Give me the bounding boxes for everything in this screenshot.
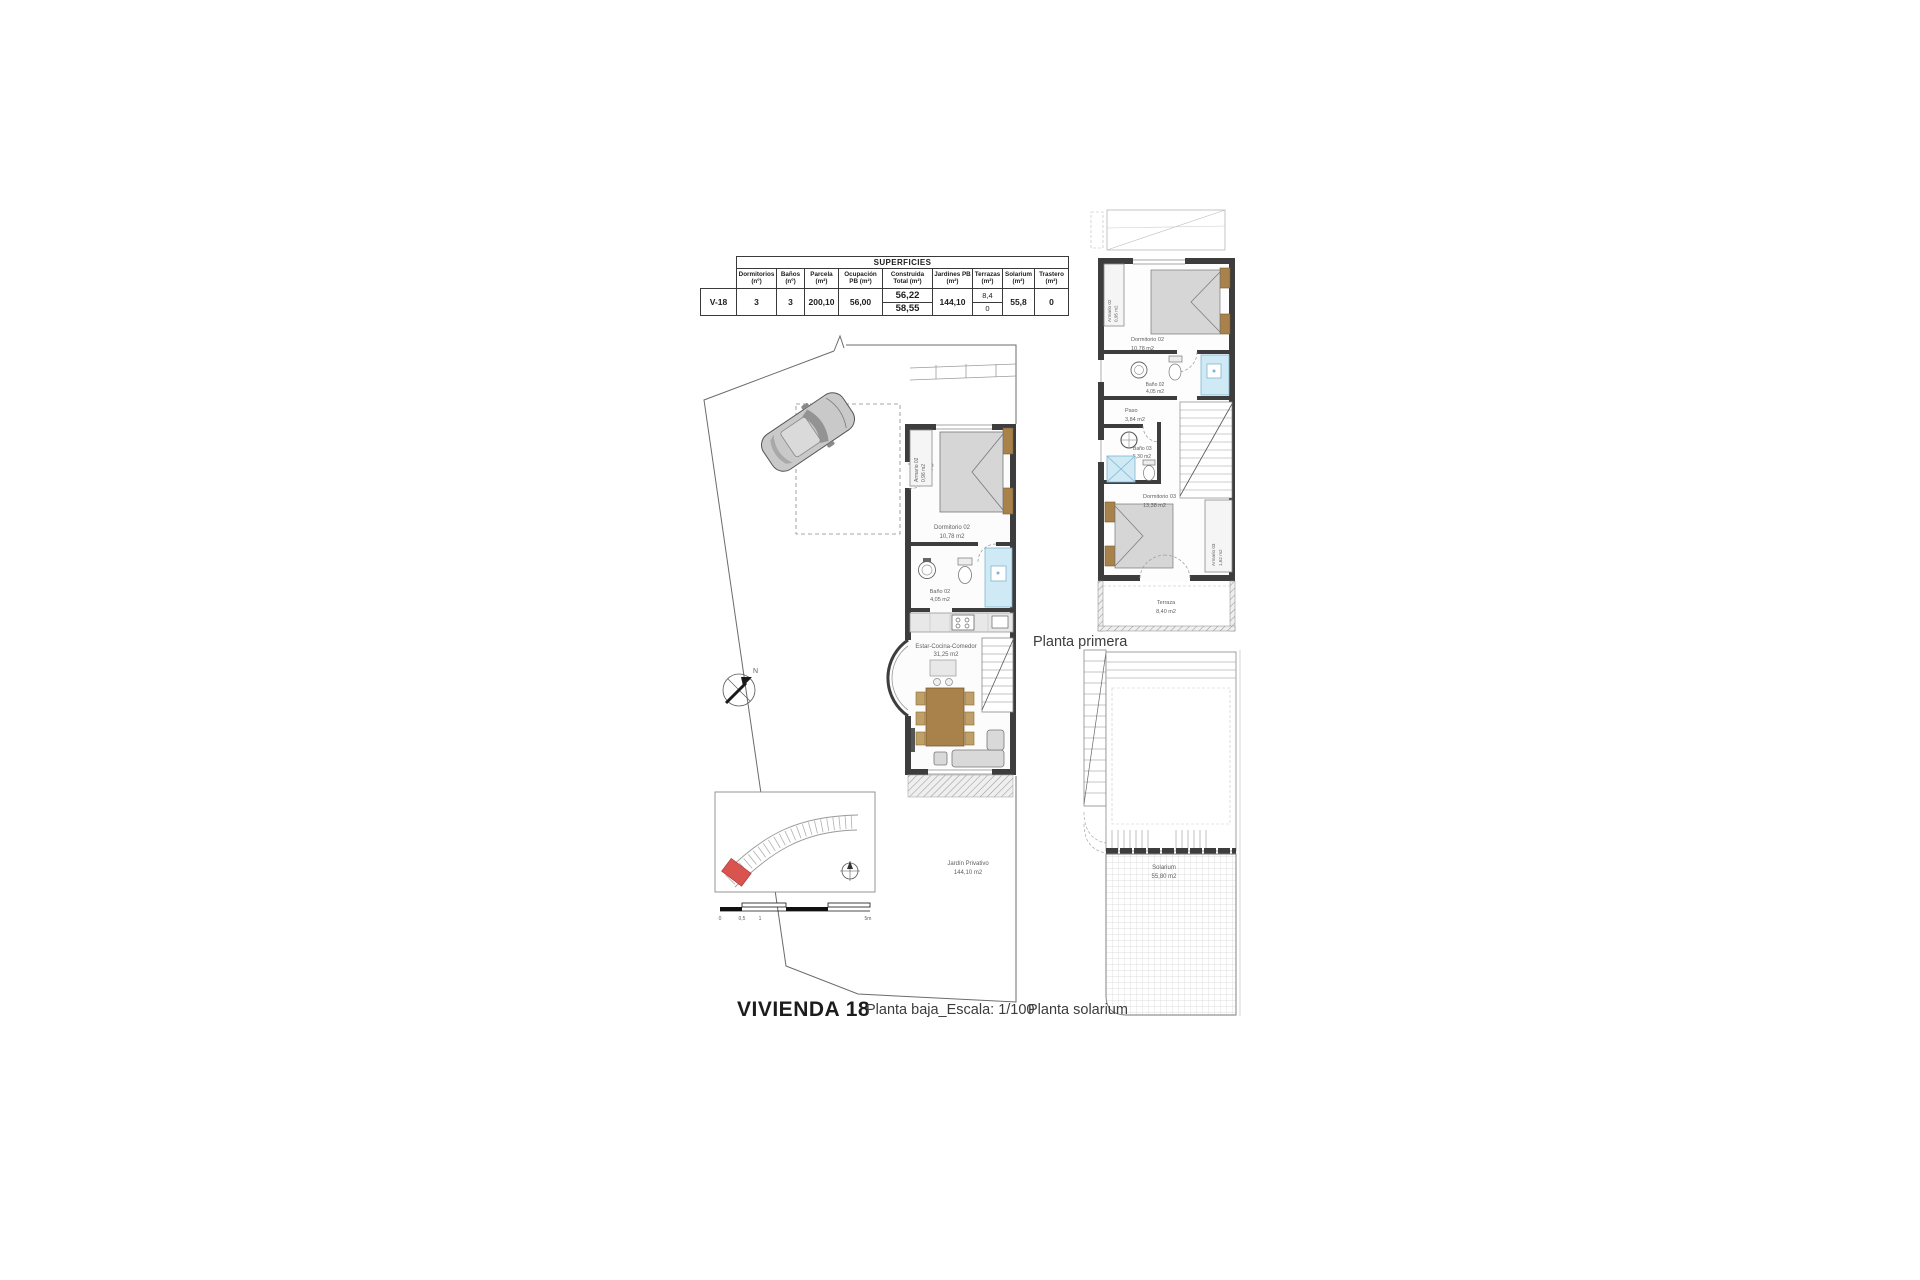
col-jardines: Jardines PB (m²): [933, 269, 973, 289]
toilet-icon-ground: [958, 558, 972, 584]
cell-terrazas: 8,4 0: [973, 289, 1003, 316]
first-bano03-name: Baño 03: [1133, 446, 1152, 452]
ground-armario-name: Armario 02: [914, 457, 920, 482]
cell-banos: 3: [777, 289, 805, 316]
col-trastero: Trastero (m²): [1035, 269, 1069, 289]
scale-bar: 0 0,5 1 5m: [719, 903, 872, 922]
ground-estar-name: Estar-Cocina-Comedor: [915, 644, 976, 650]
drawing-sheet: { "titles": { "vivienda": "VIVIENDA 18",…: [0, 0, 1920, 1280]
ground-floor-plan: Armario 02 0,96 m2 Dormitorio 02 10,78 m…: [690, 330, 1040, 1020]
ground-bano-area: 4,05 m2: [930, 597, 950, 603]
first-terraza-area: 8,40 m2: [1156, 609, 1176, 615]
first-dormitorio03-name: Dormitorio 03: [1143, 494, 1176, 500]
construida-pb: 56,22: [883, 290, 932, 303]
solarium-floor-plan: Solarium 55,80 m2: [1076, 640, 1246, 1020]
first-dormitorio02-name: Dormitorio 02: [1131, 337, 1164, 343]
boundary-break-icon: [834, 336, 844, 351]
cell-jardines: 144,10: [933, 289, 973, 316]
col-solarium: Solarium (m²): [1003, 269, 1035, 289]
col-dormitorios: Dormitorios (nº): [737, 269, 777, 289]
scale-1: 1: [759, 916, 762, 922]
first-terraza-name: Terraza: [1157, 600, 1176, 606]
toilet-icon-first-03: [1143, 460, 1155, 481]
cell-construida: 56,22 58,55: [883, 289, 933, 316]
table-corner-blank: [701, 257, 737, 269]
first-paso-area: 3,84 m2: [1125, 417, 1145, 423]
col-terrazas: Terrazas (m²): [973, 269, 1003, 289]
solarium-name: Solarium: [1152, 865, 1176, 871]
ground-estar-area: 31,25 m2: [933, 652, 959, 658]
sheet-title: VIVIENDA 18: [737, 998, 870, 1022]
compass-rose: N: [723, 668, 758, 706]
stairs-ground: [982, 638, 1013, 712]
stove-icon: [952, 615, 974, 630]
first-floor-plan: Armario 02 0,95 m2 Dormitorio 02 10,78 m…: [1085, 200, 1245, 650]
shower-icon-first-03: [1107, 456, 1135, 482]
construida-p1: 58,55: [883, 303, 932, 315]
col-banos: Baños (nº): [777, 269, 805, 289]
first-armario02-area: 0,95 m2: [1114, 305, 1119, 322]
scale-5m: 5m: [865, 916, 872, 922]
cell-dormitorios: 3: [737, 289, 777, 316]
terrazas-b: 0: [973, 303, 1002, 315]
scale-05: 0,5: [739, 916, 746, 922]
stair-ladder: [1084, 650, 1106, 806]
col-ocupacion: Ocupación PB (m²): [839, 269, 883, 289]
first-armario03-area: 1,62 m2: [1218, 549, 1223, 566]
ground-armario-area: 0,96 m2: [921, 464, 927, 482]
first-paso-name: Paso: [1125, 408, 1138, 414]
entry-canopy: [910, 364, 1016, 380]
col-construida: Construida Total (m²): [883, 269, 933, 289]
car-icon: [754, 384, 862, 479]
cell-parcela: 200,10: [805, 289, 839, 316]
tv-icon: [911, 728, 915, 752]
pergola-area: [1106, 652, 1236, 851]
table-header-blank: [701, 269, 737, 289]
house-ground: Armario 02 0,96 m2 Dormitorio 02 10,78 m…: [888, 422, 1017, 776]
kitchen-sink-icon: [992, 616, 1008, 628]
scale-0: 0: [719, 916, 722, 922]
ground-bano-name: Baño 02: [930, 589, 951, 595]
first-dormitorio03-area: 13,38 m2: [1143, 503, 1166, 509]
ground-dormitorio-name: Dormitorio 02: [934, 525, 971, 531]
terrazas-a: 8,4: [973, 290, 1002, 303]
shower-icon-first-02: [1201, 355, 1229, 395]
caption-planta-baja: Planta baja_Escala: 1/100: [866, 1002, 1035, 1018]
shower-icon-ground: [985, 548, 1012, 607]
caption-planta-primera: Planta primera: [1033, 634, 1127, 650]
solarium-area: 55,80 m2: [1151, 874, 1177, 880]
stairs-first: [1180, 402, 1232, 498]
table-title: SUPERFICIES: [737, 257, 1069, 269]
terraza-walls: [1098, 581, 1235, 631]
cell-ocupacion: 56,00: [839, 289, 883, 316]
caption-planta-solarium: Planta solarium: [1028, 1002, 1128, 1018]
kitchen-counter: [910, 613, 1013, 632]
bed-icon-first-02: [1151, 268, 1230, 334]
first-window-top: [1133, 257, 1185, 265]
dining-table-icon: [916, 688, 974, 746]
cell-solarium: 55,8: [1003, 289, 1035, 316]
first-bano02-area: 4,05 m2: [1146, 389, 1164, 395]
first-bano02-name: Baño 02: [1146, 382, 1165, 388]
first-armario02-name: Armario 02: [1107, 299, 1112, 322]
jardin-area: 144,10 m2: [954, 870, 983, 876]
surfaces-table: SUPERFICIES Dormitorios (nº) Baños (nº) …: [700, 256, 1069, 316]
compass-n-label: N: [753, 668, 758, 675]
bed-icon-first-03: [1105, 502, 1173, 568]
col-parcela: Parcela (m²): [805, 269, 839, 289]
first-bano03-area: 5,30 m2: [1133, 454, 1151, 460]
jardin-name: Jardín Privativo: [947, 861, 989, 867]
cell-trastero: 0: [1035, 289, 1069, 316]
sink-icon-first-02: [1131, 362, 1147, 378]
ground-dormitorio-area: 10,78 m2: [939, 534, 965, 540]
cell-unit-id: V-18: [701, 289, 737, 316]
window-top: [936, 422, 992, 431]
toilet-icon-first-02: [1169, 356, 1182, 380]
terrace-strip: [908, 775, 1013, 797]
site-inset-map: [715, 792, 875, 892]
bed-icon-ground: [940, 428, 1013, 514]
roof-stair-structure: [1091, 210, 1225, 250]
bay-window-wall: [888, 640, 908, 716]
first-armario03-name: Armario 03: [1211, 543, 1216, 566]
